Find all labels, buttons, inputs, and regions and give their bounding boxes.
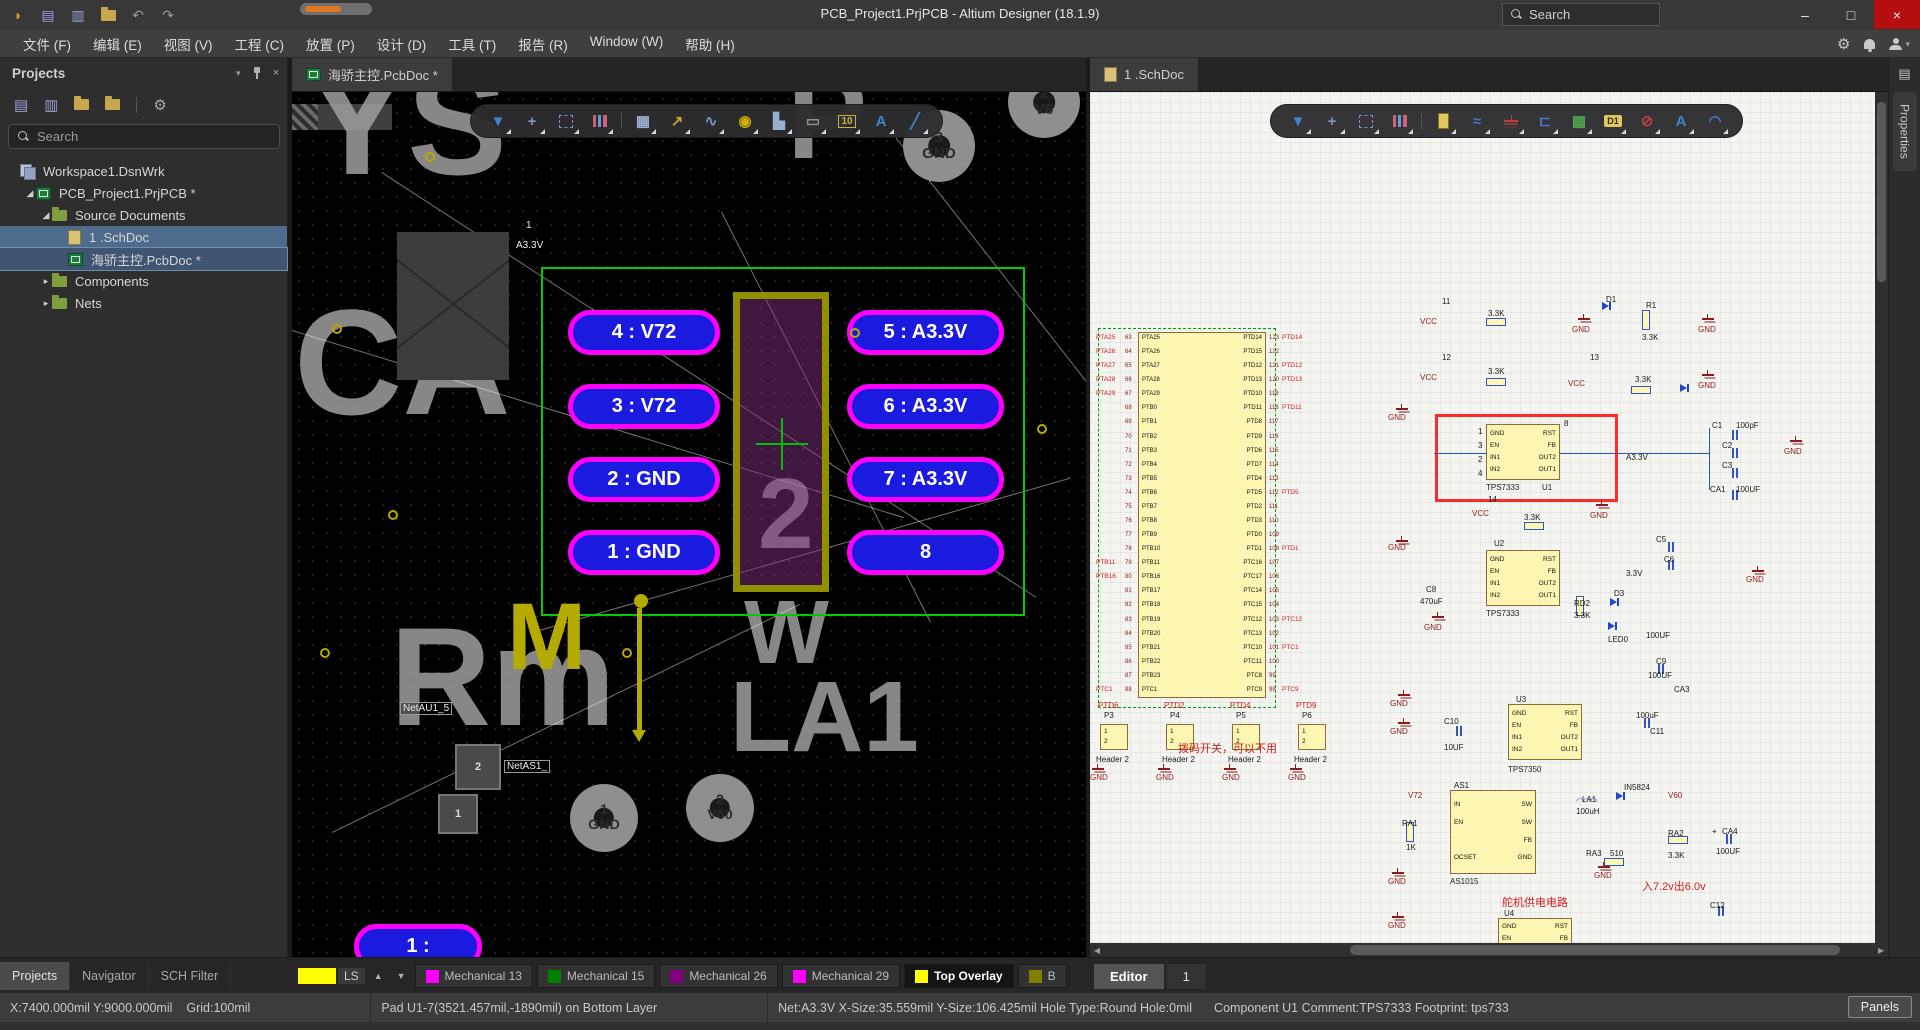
sch-label: VCC bbox=[1420, 318, 1437, 326]
schematic-editor-pane: 1 .SchDoc PTA25PTD14PTA26PTD15PTA27PTD12… bbox=[1090, 58, 1888, 957]
doc-icon bbox=[68, 230, 81, 245]
sch-label: C6 bbox=[1664, 556, 1674, 564]
align-icon[interactable] bbox=[587, 108, 613, 134]
pin-number: 87 bbox=[1125, 673, 1132, 679]
sch-toolbar: ▼+≈⊏▩D1⊘A◠ bbox=[1270, 104, 1743, 138]
capacitor-symbol[interactable] bbox=[1730, 430, 1738, 440]
layer-scroll-down-icon[interactable]: ▼ bbox=[392, 968, 411, 984]
mcu-symbol[interactable]: PTA25PTD14PTA26PTD15PTA27PTD12PTA28PTD13… bbox=[1138, 332, 1266, 698]
sch-label: + bbox=[1712, 828, 1717, 836]
tree-item-3[interactable]: 1 .SchDoc bbox=[0, 226, 287, 248]
text-icon[interactable]: A bbox=[868, 108, 894, 134]
resistor-symbol[interactable] bbox=[1524, 522, 1544, 530]
expand-arrow-icon[interactable]: ▸ bbox=[40, 298, 52, 309]
place-part-icon[interactable] bbox=[1430, 108, 1456, 134]
layer-set-selector[interactable]: LS bbox=[298, 968, 365, 984]
sch-label: GND bbox=[1390, 728, 1408, 736]
sch-label: P6 bbox=[1302, 712, 1312, 720]
route-icon[interactable]: ↗ bbox=[664, 108, 690, 134]
sch-label: RA1 bbox=[1402, 820, 1418, 828]
sch-bottom-tabs: Editor1 bbox=[1090, 958, 1206, 994]
place-gnd-icon bbox=[1504, 115, 1518, 127]
part-symbol[interactable]: 12 bbox=[1298, 724, 1326, 750]
pin-number: 67 bbox=[1125, 391, 1132, 397]
sch-label: Header 2 bbox=[1294, 756, 1327, 764]
pin-number: 101 bbox=[1269, 645, 1279, 651]
panels-stack-icon[interactable]: ▤ bbox=[1896, 66, 1914, 82]
sch-label: D3 bbox=[1614, 590, 1624, 598]
filter-icon[interactable]: ▼ bbox=[1285, 108, 1311, 134]
sch-label: 100UF bbox=[1736, 486, 1760, 494]
square-pad[interactable]: 1 bbox=[438, 794, 478, 834]
mcu-pin-row: PTB11PTC16 bbox=[1139, 560, 1265, 566]
mcu-pin-row: PTB20PTC13 bbox=[1139, 631, 1265, 637]
sch-label: 3.3K bbox=[1488, 310, 1504, 318]
notifications-bell-icon[interactable] bbox=[1864, 39, 1875, 49]
diode-symbol[interactable] bbox=[1610, 598, 1617, 606]
pin-number: 108 bbox=[1269, 546, 1279, 552]
menu-item-1[interactable]: 编辑 (E) bbox=[82, 29, 153, 59]
pin-number: 71 bbox=[1125, 448, 1132, 454]
pin-number: 65 bbox=[1125, 363, 1132, 369]
pin-icon[interactable] bbox=[253, 67, 261, 79]
capacitor-symbol[interactable] bbox=[1454, 726, 1462, 736]
pin-number: 99 bbox=[1269, 673, 1276, 679]
pin-number: 64 bbox=[1125, 349, 1132, 355]
no-erc-icon[interactable]: ⊘ bbox=[1634, 108, 1660, 134]
layer-scroll-up-icon[interactable]: ▲ bbox=[369, 968, 388, 984]
user-icon bbox=[1889, 38, 1902, 50]
mcu-pin-row: PTB4PTD7 bbox=[1139, 462, 1265, 468]
via[interactable] bbox=[320, 648, 330, 658]
pin-number: 73 bbox=[1125, 476, 1132, 482]
ws-icon bbox=[20, 164, 35, 178]
folder-search-icon[interactable] bbox=[74, 97, 89, 114]
toolbar-separator bbox=[1421, 113, 1422, 129]
sch-label: TPS7333 bbox=[1486, 610, 1519, 618]
move-icon[interactable]: + bbox=[1319, 108, 1345, 134]
sch-label: 3.3K bbox=[1524, 514, 1540, 522]
diode-symbol[interactable] bbox=[1680, 384, 1687, 392]
via[interactable] bbox=[332, 324, 342, 334]
sch-label: LA1 bbox=[1582, 796, 1596, 804]
place-component-icon[interactable]: ▦ bbox=[630, 108, 656, 134]
designator-icon: D1 bbox=[1604, 115, 1622, 127]
left-panel-tabs: ProjectsNavigatorSCH Filter bbox=[0, 958, 288, 993]
tab-pcbdoc[interactable]: 海骄主控.PcbDoc * bbox=[292, 58, 452, 91]
panel-close-icon[interactable]: × bbox=[273, 67, 279, 79]
net-label: PTC9 bbox=[1282, 687, 1299, 694]
pin-number: 72 bbox=[1125, 462, 1132, 468]
menu-item-5[interactable]: 设计 (D) bbox=[366, 29, 438, 59]
mech-layer-dot bbox=[634, 594, 648, 608]
resistor-symbol[interactable] bbox=[1486, 378, 1506, 386]
pin-number: 115 bbox=[1269, 448, 1279, 454]
mech-layer-arrow bbox=[632, 730, 646, 742]
panel-title: Projects bbox=[12, 66, 65, 81]
part-symbol[interactable]: 12 bbox=[1100, 724, 1128, 750]
component-body bbox=[397, 232, 509, 380]
pcb-pad[interactable]: 3 : V72 bbox=[568, 384, 720, 429]
layer-tab-mechanical-26[interactable]: Mechanical 26 bbox=[659, 964, 777, 988]
menu-item-9[interactable]: 帮助 (H) bbox=[674, 29, 746, 59]
sch-label: 3.3K bbox=[1635, 376, 1651, 384]
layer-set-label: LS bbox=[338, 968, 365, 984]
line-icon[interactable]: ╱ bbox=[902, 108, 928, 134]
net-label: NetAU1_5 bbox=[400, 702, 452, 715]
select-area-icon bbox=[559, 115, 573, 128]
panel-tab-projects[interactable]: Projects bbox=[0, 962, 70, 990]
pcb-tabstrip: 海骄主控.PcbDoc * bbox=[292, 58, 1086, 92]
sch-label: RA2 bbox=[1668, 830, 1684, 838]
pin-number: 98 bbox=[1269, 687, 1276, 693]
wire bbox=[1434, 453, 1486, 454]
pcbdoc-icon bbox=[306, 68, 321, 81]
measure-icon[interactable]: 10 bbox=[834, 108, 860, 134]
projects-toolbar: ▤▥⚙ bbox=[0, 90, 287, 120]
sch-label: P5 bbox=[1236, 712, 1246, 720]
sch-label: GND bbox=[1388, 544, 1406, 552]
sch-label: C11 bbox=[1650, 728, 1664, 736]
sch-label: P3 bbox=[1104, 712, 1114, 720]
sch-label: V60 bbox=[1668, 792, 1682, 800]
right-panel-rail: ▤ Properties bbox=[1888, 58, 1920, 957]
place-part-icon bbox=[1438, 113, 1449, 129]
cursor-coordinates: X:7400.000mil Y:9000.000mil bbox=[10, 1001, 172, 1015]
select-area-icon[interactable] bbox=[553, 108, 579, 134]
folder-icon bbox=[52, 276, 67, 287]
pcb-pad[interactable]: 8 bbox=[847, 530, 1004, 575]
net-label: PTD13 bbox=[1282, 377, 1302, 384]
layer-tab-mechanical-29[interactable]: Mechanical 29 bbox=[782, 964, 900, 988]
part-symbol[interactable]: INSWENSWFBOCSETGND bbox=[1450, 790, 1536, 874]
menu-item-0[interactable]: 文件 (F) bbox=[12, 29, 82, 59]
via[interactable] bbox=[425, 152, 435, 162]
pin-number: 77 bbox=[1125, 532, 1132, 538]
sch-label: 100pF bbox=[1736, 422, 1759, 430]
sch-label: GND bbox=[1288, 774, 1306, 782]
mcu-pin-row: PTB10PTD1 bbox=[1139, 546, 1265, 552]
layer-tab-b[interactable]: B bbox=[1018, 964, 1067, 988]
layer-tab-mechanical-15[interactable]: Mechanical 15 bbox=[537, 964, 655, 988]
via[interactable] bbox=[388, 510, 398, 520]
net-label: A3.3V bbox=[514, 240, 545, 251]
filter-icon[interactable]: ▼ bbox=[485, 108, 511, 134]
properties-panel-tab[interactable]: Properties bbox=[1893, 92, 1917, 171]
sch-label: PTD2 bbox=[1164, 702, 1184, 710]
via[interactable] bbox=[850, 328, 860, 338]
tree-item-label: Nets bbox=[75, 296, 102, 311]
tree-item-1[interactable]: ◢PCB_Project1.PrjPCB * bbox=[0, 182, 287, 204]
sch-horizontal-scrollbar[interactable]: ◀ ▶ bbox=[1090, 943, 1888, 957]
place-wire-icon[interactable]: ≈ bbox=[1464, 108, 1490, 134]
sch-label: LED0 bbox=[1608, 636, 1628, 644]
sch-label: GND bbox=[1388, 922, 1406, 930]
pin-number: 121 bbox=[1269, 363, 1279, 369]
polygon-icon[interactable]: ▙ bbox=[766, 108, 792, 134]
sch-label: GND bbox=[1698, 382, 1716, 390]
pin-number: 113 bbox=[1269, 476, 1279, 482]
sch-label: U1 bbox=[1542, 484, 1552, 492]
menu-item-3[interactable]: 工程 (C) bbox=[224, 29, 296, 59]
mcu-pin-row: PTA27PTD12 bbox=[1139, 363, 1265, 369]
pin-number: 114 bbox=[1269, 462, 1279, 468]
pcb-icon bbox=[36, 187, 51, 200]
pcb-canvas[interactable]: YSPCA2WRmLA14 : V723 : V722 : GND1 : GND… bbox=[292, 92, 1086, 957]
via[interactable] bbox=[1037, 424, 1047, 434]
pin-number: 85 bbox=[1125, 645, 1132, 651]
sch-label: 14 bbox=[1488, 496, 1497, 504]
sch-label: 入7.2v出6.0v bbox=[1642, 882, 1706, 893]
projects-search-input[interactable]: Search bbox=[8, 124, 280, 149]
mcu-pin-row: PTA25PTD14 bbox=[1139, 335, 1265, 341]
scroll-left-icon[interactable]: ◀ bbox=[1090, 943, 1104, 957]
sch-label: P4 bbox=[1170, 712, 1180, 720]
via-icon[interactable]: ◉ bbox=[732, 108, 758, 134]
sch-vertical-scrollbar[interactable] bbox=[1875, 92, 1888, 943]
tune-icon[interactable]: ∿ bbox=[698, 108, 724, 134]
sch-label: 13 bbox=[1590, 354, 1599, 362]
user-menu[interactable]: ▾ bbox=[1889, 38, 1910, 50]
arc-icon[interactable]: ◠ bbox=[1702, 108, 1728, 134]
bottom-tab-row: ProjectsNavigatorSCH Filter LS▲▼Mechanic… bbox=[0, 957, 1920, 993]
menu-bar: 文件 (F)编辑 (E)视图 (V)工程 (C)放置 (P)设计 (D)工具 (… bbox=[0, 30, 1920, 58]
sch-label: 10UF bbox=[1444, 744, 1464, 752]
sch-label: RD2 bbox=[1574, 600, 1590, 608]
grid-setting: Grid:100mil bbox=[186, 1001, 250, 1015]
pcb-pad[interactable]: 5 : A3.3V bbox=[847, 310, 1004, 355]
part-symbol[interactable]: GNDRSTENFBIN1OUT2IN2OUT1 bbox=[1486, 550, 1560, 606]
resistor-symbol[interactable] bbox=[1486, 318, 1506, 326]
pcb-pad[interactable]: 1 : GND bbox=[568, 530, 720, 575]
pcb-pad[interactable]: 7 : A3.3V bbox=[847, 457, 1004, 502]
net-label: PTC1 bbox=[1282, 645, 1299, 652]
sch-label: 3.3K bbox=[1574, 612, 1590, 620]
net-label: PTA29 bbox=[1096, 391, 1115, 398]
align-icon bbox=[593, 115, 607, 127]
pcb-pad[interactable]: 1 : bbox=[354, 924, 482, 957]
via[interactable] bbox=[622, 648, 632, 658]
sch-label: GND bbox=[1590, 512, 1608, 520]
sch-label: GND bbox=[1424, 624, 1442, 632]
tree-item-2[interactable]: ◢Source Documents bbox=[0, 204, 287, 226]
sch-label: 470uF bbox=[1420, 598, 1443, 606]
search-icon bbox=[1511, 9, 1522, 20]
scrollbar-thumb[interactable] bbox=[1350, 945, 1840, 955]
projects-panel: Projects ▾ × ▤▥⚙ Search Workspace1.DsnWr… bbox=[0, 58, 288, 957]
pin-number: 120 bbox=[1269, 377, 1279, 383]
layer-color-swatch bbox=[915, 970, 928, 983]
scroll-right-icon[interactable]: ▶ bbox=[1874, 943, 1888, 957]
sch-label: C10 bbox=[1444, 718, 1459, 726]
tree-item-4[interactable]: 海骄主控.PcbDoc * bbox=[0, 248, 287, 270]
sch-label: 3.3V bbox=[1626, 570, 1642, 578]
circular-pad[interactable]: 2V60 bbox=[686, 774, 754, 842]
sch-label: GND bbox=[1390, 700, 1408, 708]
measure-icon: 10 bbox=[838, 115, 855, 128]
settings-gear-icon[interactable]: ⚙ bbox=[153, 96, 166, 114]
sch-label: GND bbox=[1090, 774, 1108, 782]
expand-arrow-icon[interactable]: ◢ bbox=[24, 188, 36, 199]
folder-settings-icon[interactable] bbox=[105, 97, 120, 114]
pin-number: 104 bbox=[1269, 602, 1279, 608]
dimension-icon[interactable]: ▭ bbox=[800, 108, 826, 134]
global-search-input[interactable]: Search bbox=[1502, 3, 1660, 26]
menu-item-7[interactable]: 报告 (R) bbox=[507, 29, 579, 59]
square-pad[interactable]: 2 bbox=[455, 744, 501, 790]
panel-tab-sch-filter[interactable]: SCH Filter bbox=[149, 962, 232, 990]
sch-label: U2 bbox=[1494, 540, 1504, 548]
sch-label: D1 bbox=[1606, 296, 1616, 304]
menu-item-6[interactable]: 工具 (T) bbox=[437, 29, 507, 59]
pin-number: 74 bbox=[1125, 490, 1132, 496]
menu-item-4[interactable]: 放置 (P) bbox=[295, 29, 366, 59]
layer-color-swatch bbox=[1029, 970, 1042, 983]
tree-item-6[interactable]: ▸Nets bbox=[0, 292, 287, 314]
net-label: PTD1 bbox=[1282, 546, 1299, 553]
mcu-pin-row: PTB3PTD6 bbox=[1139, 448, 1265, 454]
schdoc-icon bbox=[1104, 67, 1117, 82]
text-icon[interactable]: A bbox=[1668, 108, 1694, 134]
sch-label: 100uF bbox=[1636, 712, 1659, 720]
sch-label: GND bbox=[1784, 448, 1802, 456]
scrollbar-thumb[interactable] bbox=[1877, 102, 1886, 282]
pin-number: 88 bbox=[1125, 687, 1132, 693]
sch-label: GND bbox=[1594, 872, 1612, 880]
net-label: PTD12 bbox=[1282, 363, 1302, 370]
diode-symbol[interactable] bbox=[1608, 622, 1615, 630]
active-layer-swatch bbox=[298, 968, 336, 984]
sch-label: CA4 bbox=[1722, 828, 1738, 836]
expand-arrow-icon[interactable]: ▸ bbox=[40, 276, 52, 287]
sch-label: U4 bbox=[1504, 910, 1514, 918]
pad-info: Pad U1-7(3521.457mil,-1890mil) on Bottom… bbox=[381, 1001, 657, 1015]
layer-tab-top-overlay[interactable]: Top Overlay bbox=[904, 964, 1013, 988]
select-area-icon[interactable] bbox=[1353, 108, 1379, 134]
tab-schdoc[interactable]: 1 .SchDoc bbox=[1090, 58, 1198, 91]
layer-tab-mechanical-13[interactable]: Mechanical 13 bbox=[415, 964, 533, 988]
sch-label: 3.3K bbox=[1488, 368, 1504, 376]
panel-dropdown-icon[interactable]: ▾ bbox=[236, 68, 241, 79]
panel-tab-navigator[interactable]: Navigator bbox=[70, 962, 149, 990]
copy-icon[interactable]: ▥ bbox=[44, 96, 58, 114]
sch-label: GND bbox=[1388, 878, 1406, 886]
place-gnd-icon[interactable] bbox=[1498, 108, 1524, 134]
mcu-pin-row: PTA26PTD15 bbox=[1139, 349, 1265, 355]
minimize-button[interactable]: – bbox=[1782, 0, 1828, 29]
pin-number: 117 bbox=[1269, 419, 1279, 425]
panels-button[interactable]: Panels bbox=[1848, 996, 1912, 1018]
menu-item-2[interactable]: 视图 (V) bbox=[153, 29, 224, 59]
resistor-symbol[interactable] bbox=[1604, 858, 1624, 866]
sch-tab-1[interactable]: 1 bbox=[1167, 964, 1206, 989]
sch-label: CA3 bbox=[1674, 686, 1690, 694]
mech-layer-line bbox=[637, 608, 642, 730]
mcu-pin-row: PTB5PTD4 bbox=[1139, 476, 1265, 482]
tree-item-label: PCB_Project1.PrjPCB * bbox=[59, 186, 196, 201]
maximize-button[interactable]: □ bbox=[1828, 0, 1874, 29]
save-icon[interactable]: ▤ bbox=[14, 96, 28, 114]
selection-highlight-rect bbox=[1435, 414, 1618, 502]
close-button[interactable]: × bbox=[1874, 0, 1920, 29]
sch-label: GND bbox=[1222, 774, 1240, 782]
mcu-pin-row: PTB21PTC10 bbox=[1139, 645, 1265, 651]
tree-item-label: Components bbox=[75, 274, 149, 289]
sch-label: A3.3V bbox=[1626, 454, 1648, 462]
mcu-pin-row: PTA29PTD10 bbox=[1139, 391, 1265, 397]
sch-label: 510 bbox=[1610, 850, 1623, 858]
status-bar: X:7400.000mil Y:9000.000mil Grid:100mil … bbox=[0, 993, 1920, 1030]
sch-label: VCC bbox=[1568, 380, 1585, 388]
pin-number: 78 bbox=[1125, 546, 1132, 552]
tree-item-0[interactable]: Workspace1.DsnWrk bbox=[0, 160, 287, 182]
pcb-pad[interactable]: 4 : V72 bbox=[568, 310, 720, 355]
place-port-icon[interactable]: ⊏ bbox=[1532, 108, 1558, 134]
pcb-pad[interactable]: 6 : A3.3V bbox=[847, 384, 1004, 429]
sch-label: 2 bbox=[1478, 456, 1482, 464]
mcu-pin-row: PTC1PTC9 bbox=[1139, 687, 1265, 693]
align-icon bbox=[1393, 115, 1407, 127]
tree-item-5[interactable]: ▸Components bbox=[0, 270, 287, 292]
sch-label: GND bbox=[1572, 326, 1590, 334]
sch-label: 12 bbox=[1442, 354, 1451, 362]
circular-pad[interactable]: 1GND bbox=[570, 784, 638, 852]
part-symbol[interactable]: GNDRSTENFB bbox=[1498, 918, 1572, 943]
sch-label: C8 bbox=[1426, 586, 1436, 594]
net-label: NetAS1_ bbox=[504, 760, 550, 773]
pcb-pad[interactable]: 2 : GND bbox=[568, 457, 720, 502]
sch-canvas[interactable]: PTA25PTD14PTA26PTD15PTA27PTD12PTA28PTD13… bbox=[1090, 92, 1888, 943]
chevron-down-icon: ▾ bbox=[1905, 39, 1910, 50]
project-tree: Workspace1.DsnWrk◢PCB_Project1.PrjPCB *◢… bbox=[0, 160, 287, 314]
sch-label: 舵机供电电路 bbox=[1502, 898, 1568, 909]
diode-symbol[interactable] bbox=[1616, 792, 1623, 800]
sch-label: GND bbox=[1156, 774, 1174, 782]
pin-number: 83 bbox=[1125, 617, 1132, 623]
resistor-symbol[interactable] bbox=[1631, 386, 1651, 394]
sch-label: VCC bbox=[1420, 374, 1437, 382]
align-icon[interactable] bbox=[1387, 108, 1413, 134]
expand-arrow-icon[interactable]: ◢ bbox=[40, 210, 52, 221]
component-info: Component U1 Comment:TPS7333 Footprint: … bbox=[1214, 1001, 1509, 1015]
sheet-symbol-icon[interactable]: ▩ bbox=[1566, 108, 1592, 134]
wire bbox=[1709, 428, 1710, 490]
menu-item-8[interactable]: Window (W) bbox=[579, 29, 675, 59]
pin-number: 122 bbox=[1269, 349, 1279, 355]
sch-label: 拨码开关，可以不用 bbox=[1178, 744, 1277, 755]
move-icon[interactable]: + bbox=[519, 108, 545, 134]
part-symbol[interactable]: GNDRSTENFBIN1OUT2IN2OUT1 bbox=[1508, 704, 1582, 760]
designator-icon[interactable]: D1 bbox=[1600, 108, 1626, 134]
sch-label: 3.3K bbox=[1668, 852, 1684, 860]
resistor-symbol[interactable] bbox=[1642, 310, 1650, 330]
sch-label: 100uH bbox=[1576, 808, 1600, 816]
capacitor-symbol[interactable] bbox=[1666, 542, 1674, 552]
net-label: 1 bbox=[524, 220, 534, 231]
sch-label: V72 bbox=[1408, 792, 1422, 800]
net-info: Net:A3.3V X-Size:35.559mil Y-Size:106.42… bbox=[778, 1001, 1192, 1015]
pin-number: 105 bbox=[1269, 588, 1279, 594]
pcb-editor-pane: 海骄主控.PcbDoc * YSPCA2WRmLA14 : V723 : V72… bbox=[292, 58, 1086, 957]
net-label: PTC1 bbox=[1096, 687, 1113, 694]
sch-label: VCC bbox=[1472, 510, 1489, 518]
circular-pad[interactable]: 2V6 bbox=[1008, 92, 1080, 138]
mcu-pin-row: PTB6PTD5 bbox=[1139, 490, 1265, 496]
toolbar-separator bbox=[136, 97, 137, 113]
settings-gear-icon[interactable]: ⚙ bbox=[1837, 35, 1850, 53]
sch-tab-editor[interactable]: Editor bbox=[1094, 964, 1164, 989]
tree-item-label: Workspace1.DsnWrk bbox=[43, 164, 165, 179]
